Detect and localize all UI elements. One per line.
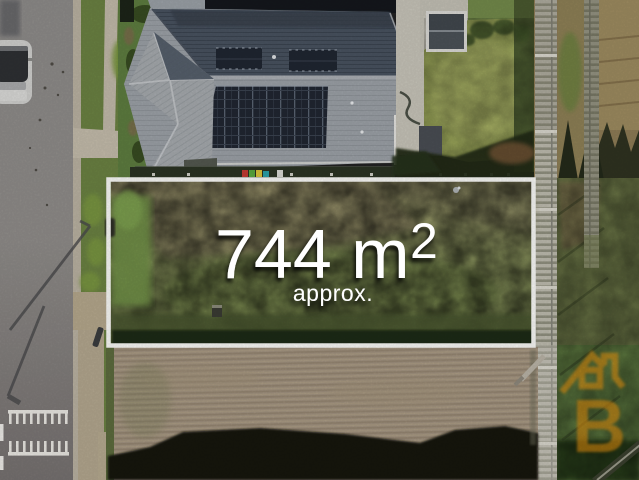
svg-text:2: 2 bbox=[410, 213, 438, 269]
svg-text:approx.: approx. bbox=[293, 280, 373, 306]
